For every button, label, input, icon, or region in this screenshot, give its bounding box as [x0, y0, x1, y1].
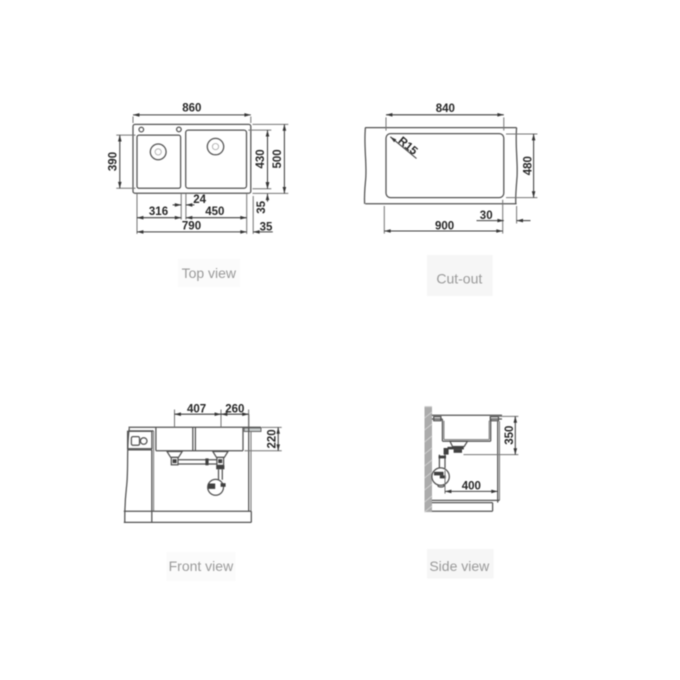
- svg-text:450: 450: [205, 206, 224, 218]
- svg-text:316: 316: [149, 206, 168, 218]
- svg-text:430: 430: [255, 149, 267, 168]
- svg-text:390: 390: [108, 152, 120, 171]
- svg-text:Front view: Front view: [169, 558, 234, 574]
- svg-text:Cut-out: Cut-out: [436, 270, 482, 286]
- svg-text:Top view: Top view: [182, 265, 237, 281]
- svg-text:407: 407: [187, 403, 206, 415]
- svg-text:35: 35: [256, 200, 268, 213]
- svg-text:350: 350: [504, 426, 516, 445]
- svg-text:Side view: Side view: [429, 558, 490, 574]
- svg-text:900: 900: [435, 221, 454, 233]
- svg-text:35: 35: [260, 221, 273, 233]
- svg-text:30: 30: [480, 210, 493, 222]
- svg-text:400: 400: [462, 481, 481, 493]
- svg-text:260: 260: [225, 403, 244, 415]
- svg-text:500: 500: [272, 149, 284, 168]
- svg-text:24: 24: [193, 194, 206, 206]
- svg-text:840: 840: [436, 103, 455, 115]
- svg-text:220: 220: [266, 429, 278, 448]
- svg-text:790: 790: [182, 220, 201, 232]
- svg-text:860: 860: [182, 103, 201, 115]
- svg-text:480: 480: [522, 156, 534, 175]
